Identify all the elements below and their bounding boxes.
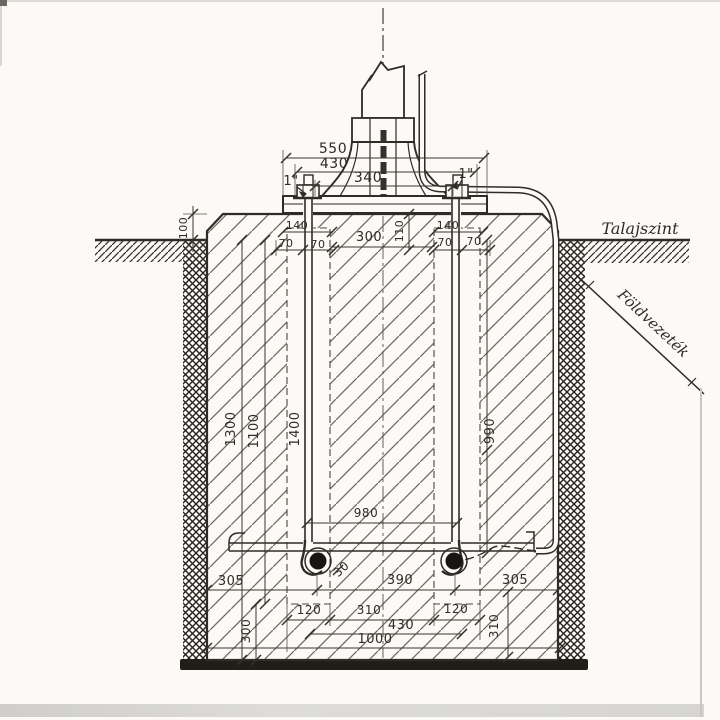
- dim-70-right-b-label: 70: [467, 235, 482, 248]
- dim-305-left-label: 305: [218, 574, 244, 589]
- bolt-nut-left: [297, 185, 319, 198]
- earth-conductor-label: Földvezeték: [613, 285, 693, 361]
- dim-70-left-b-label: 70: [311, 238, 326, 251]
- dim-980-label: 980: [354, 506, 378, 520]
- scan-artifact-left-edge: [0, 6, 2, 66]
- dim-300-vertical-label: 300: [239, 619, 253, 643]
- bolt-anchor-head-left: [310, 553, 327, 570]
- dim-340-label: 340: [354, 170, 382, 186]
- dim-70-left-a-label: 70: [279, 237, 294, 250]
- dim-1400-label: 1400: [288, 411, 303, 446]
- dim-550-label: 550: [319, 141, 347, 157]
- earth-strip-left: [183, 240, 207, 664]
- bolt-anchor-head-right: [446, 553, 463, 570]
- bolt-size-left-label: 1": [283, 174, 298, 189]
- scan-artifact-bottom-band: [0, 704, 704, 717]
- dim-305-right-label: 305: [502, 573, 528, 588]
- mast: [322, 8, 448, 203]
- dim-430-bottom-label: 430: [388, 618, 414, 633]
- scan-artifact-top-edge: [0, 0, 720, 2]
- scan-artifact-right-line: [700, 388, 702, 717]
- dim-110-label: 110: [393, 220, 406, 243]
- bolt-stub-left: [304, 175, 313, 185]
- mast-tube: [362, 62, 404, 118]
- dim-310-mid-label: 310: [357, 603, 381, 617]
- earth-strip-right: [558, 240, 585, 664]
- dim-1100-label: 1100: [247, 413, 262, 448]
- dim-140-right-label: 140: [437, 219, 460, 232]
- dim-430-label: 430: [320, 156, 348, 172]
- dim-70-right-a-label: 70: [438, 236, 453, 249]
- foundation-section-drawing: 550 430 340 1" 1" 140 140 70 70 70 70 30…: [0, 0, 720, 720]
- dim-120-left-label: 120: [297, 603, 321, 617]
- bolt-size-right-label: 1": [458, 167, 473, 182]
- dim-300-label: 300: [356, 230, 382, 245]
- dim-1000-label: 1000: [357, 632, 392, 647]
- earth-conductor-leader: [573, 272, 704, 394]
- dim-140-left-label: 140: [286, 219, 309, 232]
- dim-1300-label: 1300: [224, 411, 239, 446]
- scanned-drawing-page: 550 430 340 1" 1" 140 140 70 70 70 70 30…: [0, 0, 720, 720]
- dim-310-vertical-label: 310: [487, 614, 501, 638]
- dim-120-right-label: 120: [444, 602, 468, 616]
- dim-390-label: 390: [387, 573, 413, 588]
- dim-990-label: 990: [483, 418, 498, 444]
- dim-100-label: 100: [177, 217, 190, 240]
- ground-hatch-right: [558, 241, 689, 263]
- ground-level-label: Talajszint: [601, 219, 679, 238]
